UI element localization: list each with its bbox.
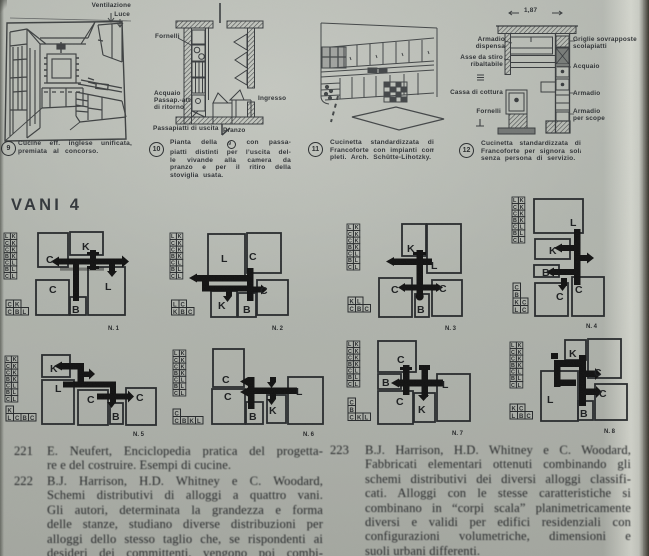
svg-text:C: C bbox=[391, 284, 399, 296]
svg-text:B: B bbox=[417, 304, 425, 316]
svg-text:C: C bbox=[136, 392, 144, 404]
svg-text:C: C bbox=[397, 354, 405, 366]
svg-text:L: L bbox=[431, 260, 438, 272]
svg-text:B: B bbox=[382, 377, 390, 389]
svg-text:K: K bbox=[418, 404, 426, 416]
svg-text:C: C bbox=[350, 307, 355, 313]
svg-text:L: L bbox=[55, 383, 62, 395]
svg-text:K: K bbox=[350, 299, 355, 305]
svg-text:C: C bbox=[30, 416, 35, 422]
svg-text:L: L bbox=[547, 394, 554, 406]
svg-text:C: C bbox=[15, 416, 20, 422]
svg-text:L: L bbox=[442, 379, 449, 391]
svg-text:N. 3: N. 3 bbox=[445, 326, 457, 332]
svg-text:B: B bbox=[243, 304, 251, 316]
svg-text:C: C bbox=[365, 307, 370, 313]
svg-text:B: B bbox=[181, 310, 186, 316]
svg-text:K: K bbox=[549, 245, 557, 257]
svg-text:C: C bbox=[522, 300, 527, 306]
svg-text:N. 4: N. 4 bbox=[586, 324, 598, 330]
svg-text:C: C bbox=[522, 308, 527, 314]
svg-text:L: L bbox=[512, 414, 516, 420]
svg-text:L: L bbox=[221, 253, 228, 265]
svg-text:K: K bbox=[50, 363, 58, 375]
svg-text:B: B bbox=[72, 304, 80, 316]
svg-text:C: C bbox=[396, 396, 404, 408]
svg-text:C: C bbox=[8, 310, 13, 316]
svg-text:K: K bbox=[82, 241, 90, 253]
svg-text:B: B bbox=[182, 419, 187, 425]
svg-text:L: L bbox=[23, 310, 27, 316]
svg-text:C: C bbox=[575, 284, 583, 296]
svg-text:N. 6: N. 6 bbox=[303, 432, 315, 438]
svg-text:C: C bbox=[527, 414, 532, 420]
svg-text:C: C bbox=[439, 283, 447, 295]
svg-text:C: C bbox=[188, 310, 193, 316]
svg-text:L: L bbox=[8, 416, 12, 422]
svg-text:N. 2: N. 2 bbox=[272, 326, 284, 332]
svg-text:C: C bbox=[249, 251, 257, 263]
svg-text:K: K bbox=[173, 310, 178, 316]
svg-text:K: K bbox=[15, 302, 20, 308]
svg-text:C: C bbox=[519, 406, 524, 412]
svg-text:B: B bbox=[249, 411, 257, 423]
svg-text:C: C bbox=[260, 285, 268, 297]
svg-text:L: L bbox=[296, 386, 303, 398]
svg-text:C: C bbox=[515, 285, 520, 291]
svg-text:B: B bbox=[542, 267, 550, 279]
svg-text:B: B bbox=[15, 310, 20, 316]
svg-text:C: C bbox=[181, 302, 186, 308]
svg-text:B: B bbox=[580, 408, 588, 420]
svg-text:C: C bbox=[8, 302, 13, 308]
svg-text:K: K bbox=[512, 406, 517, 412]
svg-text:C: C bbox=[175, 411, 180, 417]
svg-text:L: L bbox=[515, 308, 519, 314]
svg-text:K: K bbox=[190, 419, 195, 425]
svg-text:B: B bbox=[515, 293, 520, 299]
svg-text:C: C bbox=[594, 367, 602, 379]
svg-text:B: B bbox=[519, 414, 524, 420]
svg-text:L: L bbox=[357, 299, 361, 305]
svg-text:C: C bbox=[599, 388, 607, 400]
svg-text:B: B bbox=[112, 411, 120, 423]
svg-text:L: L bbox=[105, 281, 112, 293]
svg-text:C: C bbox=[350, 400, 355, 406]
svg-text:L: L bbox=[365, 415, 369, 421]
svg-text:B: B bbox=[350, 408, 355, 414]
svg-text:K: K bbox=[357, 415, 362, 421]
svg-text:L: L bbox=[173, 302, 177, 308]
svg-text:C: C bbox=[222, 374, 230, 386]
svg-text:N. 7: N. 7 bbox=[452, 431, 464, 437]
svg-text:K: K bbox=[218, 300, 226, 312]
svg-text:C: C bbox=[49, 284, 57, 296]
svg-text:C: C bbox=[556, 291, 564, 303]
svg-text:K: K bbox=[8, 408, 13, 414]
svg-text:C: C bbox=[46, 254, 54, 266]
svg-text:C: C bbox=[350, 415, 355, 421]
svg-text:C: C bbox=[87, 394, 95, 406]
svg-text:B: B bbox=[357, 307, 362, 313]
svg-text:L: L bbox=[570, 217, 577, 229]
svg-text:K: K bbox=[515, 300, 520, 306]
svg-text:N. 1: N. 1 bbox=[108, 326, 120, 332]
svg-text:B: B bbox=[23, 416, 28, 422]
svg-text:K: K bbox=[569, 348, 577, 360]
svg-text:L: L bbox=[197, 419, 201, 425]
svg-text:K: K bbox=[407, 243, 415, 255]
svg-text:N. 8: N. 8 bbox=[604, 429, 616, 435]
svg-text:N. 5: N. 5 bbox=[133, 432, 145, 438]
svg-text:C: C bbox=[224, 391, 232, 403]
svg-text:K: K bbox=[269, 405, 277, 417]
svg-text:C: C bbox=[175, 419, 180, 425]
